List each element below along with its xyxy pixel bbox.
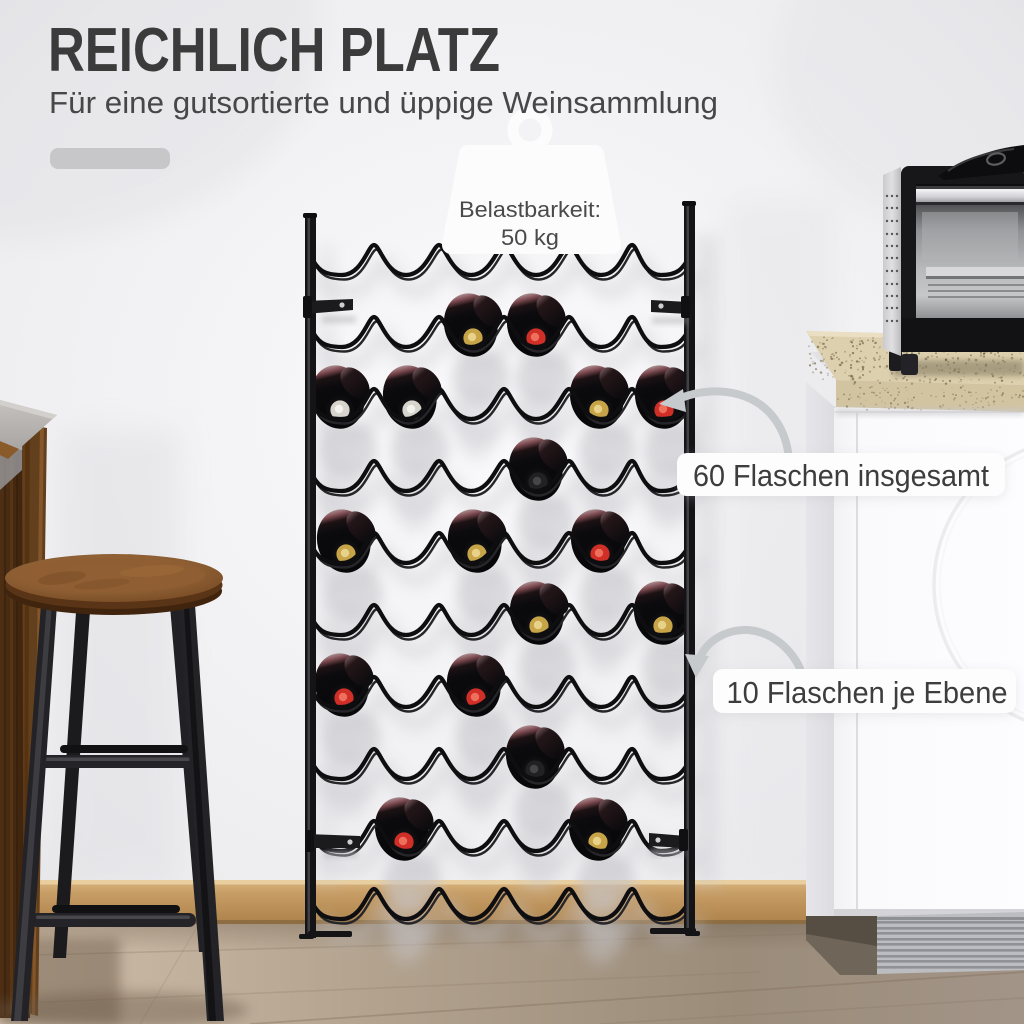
svg-text:60 Flaschen insgesamt: 60 Flaschen insgesamt — [693, 458, 989, 493]
svg-text:Belastbarkeit:: Belastbarkeit: — [459, 197, 601, 222]
svg-text:Für eine gutsortierte und üppi: Für eine gutsortierte und üppige Weinsam… — [49, 85, 718, 120]
svg-text:50 kg: 50 kg — [501, 225, 559, 250]
svg-text:10 Flaschen je Ebene: 10 Flaschen je Ebene — [727, 675, 1008, 710]
svg-text:REICHLICH PLATZ: REICHLICH PLATZ — [48, 16, 500, 85]
